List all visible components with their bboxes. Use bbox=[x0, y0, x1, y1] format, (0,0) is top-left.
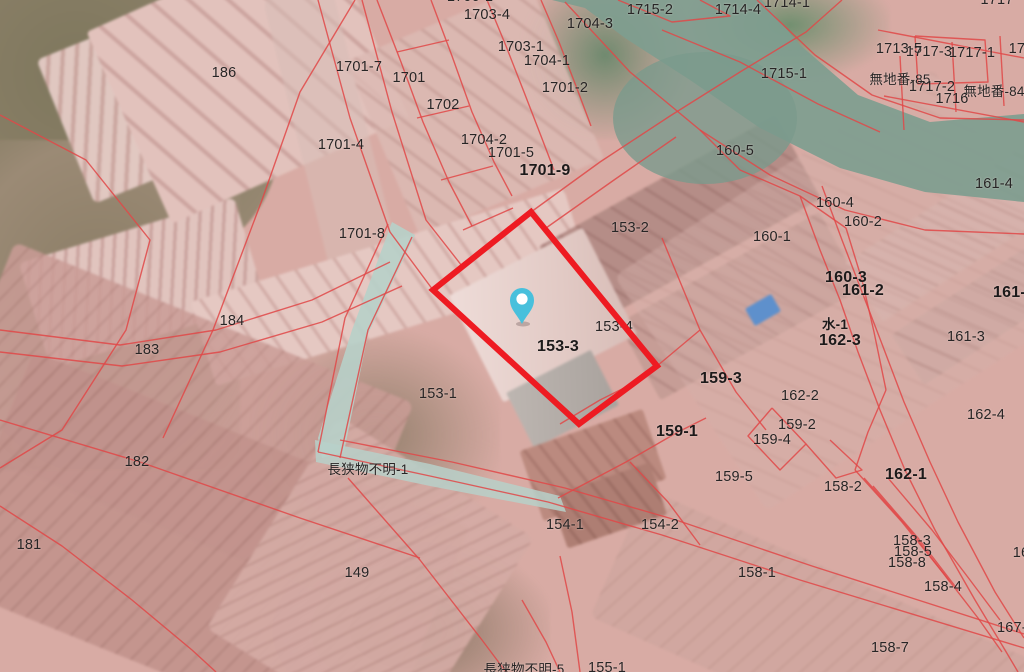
highlighted-parcel-boundary[interactable] bbox=[433, 212, 657, 424]
location-pin-icon[interactable] bbox=[510, 288, 534, 327]
map-canvas[interactable]: 1700-11703-41704-31703-11704-11701-21701… bbox=[0, 0, 1024, 672]
map-marks-layer bbox=[0, 0, 1024, 672]
